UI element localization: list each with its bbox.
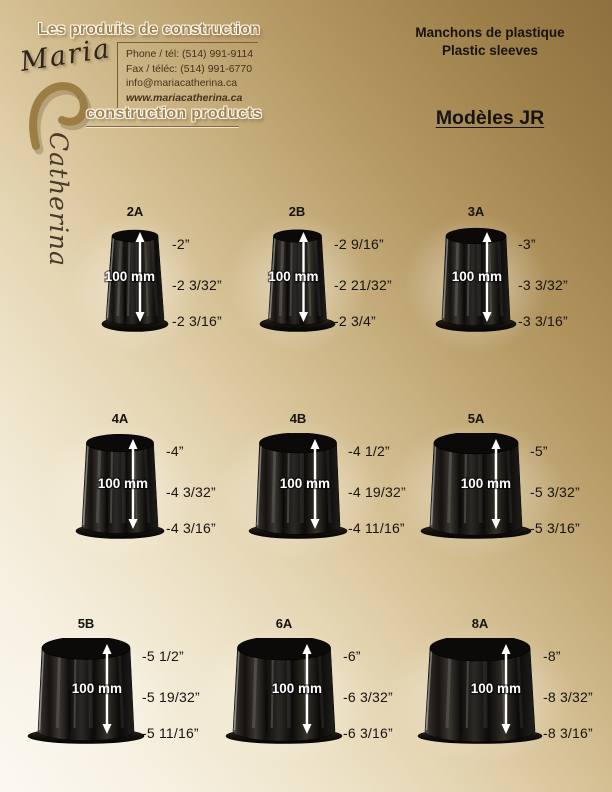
sleeve-photo: 100 mm xyxy=(411,433,541,548)
sleeve-opening xyxy=(87,434,154,451)
height-label: 100 mm xyxy=(105,269,155,284)
dimension-top: -5” xyxy=(530,443,548,459)
dimension-top: -2 9/16” xyxy=(334,236,384,252)
height-label: 100 mm xyxy=(72,681,122,696)
sleeve-opening xyxy=(446,228,506,244)
sleeve-opening xyxy=(42,638,130,659)
sleeve-opening xyxy=(112,230,158,242)
product-title-english: Plastic sleeves xyxy=(375,42,605,60)
dimension-middle: -8 3/32” xyxy=(543,689,593,705)
sleeve-photo: 100 mm xyxy=(408,638,552,753)
tagline-french: Les produits de construction xyxy=(38,21,260,39)
contact-fax: Fax / téléc: (514) 991-6770 xyxy=(126,62,258,77)
contact-email: info@mariacatherina.ca xyxy=(126,76,258,91)
titles-block: Manchons de plastique Plastic sleeves Mo… xyxy=(375,24,605,130)
product-title-french: Manchons de plastique xyxy=(375,24,605,42)
product-code: 2B xyxy=(257,204,337,219)
sleeve-image: 100 mm xyxy=(92,226,178,336)
height-label: 100 mm xyxy=(280,476,330,491)
sleeve-streak xyxy=(467,652,468,728)
contact-website: www.mariacatherina.ca xyxy=(126,91,258,106)
dimension-top: -4 1/2” xyxy=(348,443,390,459)
sleeve-photo: 100 mm xyxy=(66,433,174,548)
sleeve-opening xyxy=(434,433,518,454)
sleeve-photo: 100 mm xyxy=(92,226,178,341)
sleeve-photo: 100 mm xyxy=(18,638,154,753)
product-code: 6A xyxy=(244,616,324,631)
contact-phone: Phone / tél: (514) 991-9114 xyxy=(126,47,258,62)
height-label: 100 mm xyxy=(98,476,148,491)
dimension-bottom: -5 11/16” xyxy=(142,725,199,741)
dimension-middle: -3 3/32” xyxy=(518,277,568,293)
dimension-bottom: -6 3/16” xyxy=(343,725,393,741)
dimension-middle: -2 3/32” xyxy=(172,277,222,293)
sleeve-opening xyxy=(430,638,530,661)
height-label: 100 mm xyxy=(452,269,502,284)
sleeve-photo: 100 mm xyxy=(250,226,345,341)
dimension-middle: -2 21/32” xyxy=(334,277,392,293)
sleeve-opening xyxy=(260,433,337,453)
sleeve-image: 100 mm xyxy=(216,638,352,748)
dimension-bottom: -2 3/4” xyxy=(334,313,376,329)
product-code: 5B xyxy=(46,616,126,631)
height-label: 100 mm xyxy=(471,681,521,696)
dimension-bottom: -8 3/16” xyxy=(543,725,593,741)
product-code: 2A xyxy=(95,204,175,219)
dimension-top: -5 1/2” xyxy=(142,648,184,664)
product-dimensions: -8” -8 3/32” -8 3/16” xyxy=(543,645,612,745)
dimension-bottom: -2 3/16” xyxy=(172,313,222,329)
sleeve-image: 100 mm xyxy=(18,638,154,748)
height-label: 100 mm xyxy=(272,681,322,696)
product-code: 4A xyxy=(80,411,160,426)
model-title: Modèles JR xyxy=(436,107,544,130)
tagline-english: construction products xyxy=(86,105,262,123)
product-code: 8A xyxy=(440,616,520,631)
brand-last-name: Catherina xyxy=(44,132,73,267)
contact-box: Phone / tél: (514) 991-9114 Fax / téléc:… xyxy=(117,42,258,108)
sleeve-image: 100 mm xyxy=(250,226,345,336)
dimension-top: -3” xyxy=(518,236,536,252)
sleeve-opening xyxy=(273,230,321,242)
dimension-middle: -5 3/32” xyxy=(530,484,580,500)
dimension-top: -4” xyxy=(166,443,184,459)
product-dimensions: -5” -5 3/32” -5 3/16” xyxy=(530,440,610,540)
sleeve-opening xyxy=(238,638,331,660)
dimension-top: -6” xyxy=(343,648,361,664)
sleeve-image: 100 mm xyxy=(239,433,357,543)
sleeve-image: 100 mm xyxy=(408,638,552,748)
sleeve-photo: 100 mm xyxy=(426,226,526,341)
product-code: 3A xyxy=(436,204,516,219)
dimension-top: -8” xyxy=(543,648,561,664)
product-code: 5A xyxy=(436,411,516,426)
tagline-underline-rule xyxy=(86,126,239,127)
catalog-page: Les produits de construction Maria Cathe… xyxy=(0,0,612,792)
dimension-bottom: -5 3/16” xyxy=(530,520,580,536)
sleeve-photo: 100 mm xyxy=(239,433,357,548)
sleeve-image: 100 mm xyxy=(426,226,526,336)
dimension-top: -2” xyxy=(172,236,190,252)
product-dimensions: -3” -3 3/32” -3 3/16” xyxy=(518,233,598,333)
sleeve-image: 100 mm xyxy=(411,433,541,543)
dimension-bottom: -3 3/16” xyxy=(518,313,568,329)
product-code: 4B xyxy=(258,411,338,426)
height-label: 100 mm xyxy=(461,476,511,491)
sleeve-photo: 100 mm xyxy=(216,638,352,753)
height-label: 100 mm xyxy=(268,269,318,284)
sleeve-streak xyxy=(273,447,275,523)
sleeve-image: 100 mm xyxy=(66,433,174,543)
dimension-bottom: -4 3/16” xyxy=(166,520,216,536)
dimension-middle: -4 3/32” xyxy=(166,484,216,500)
